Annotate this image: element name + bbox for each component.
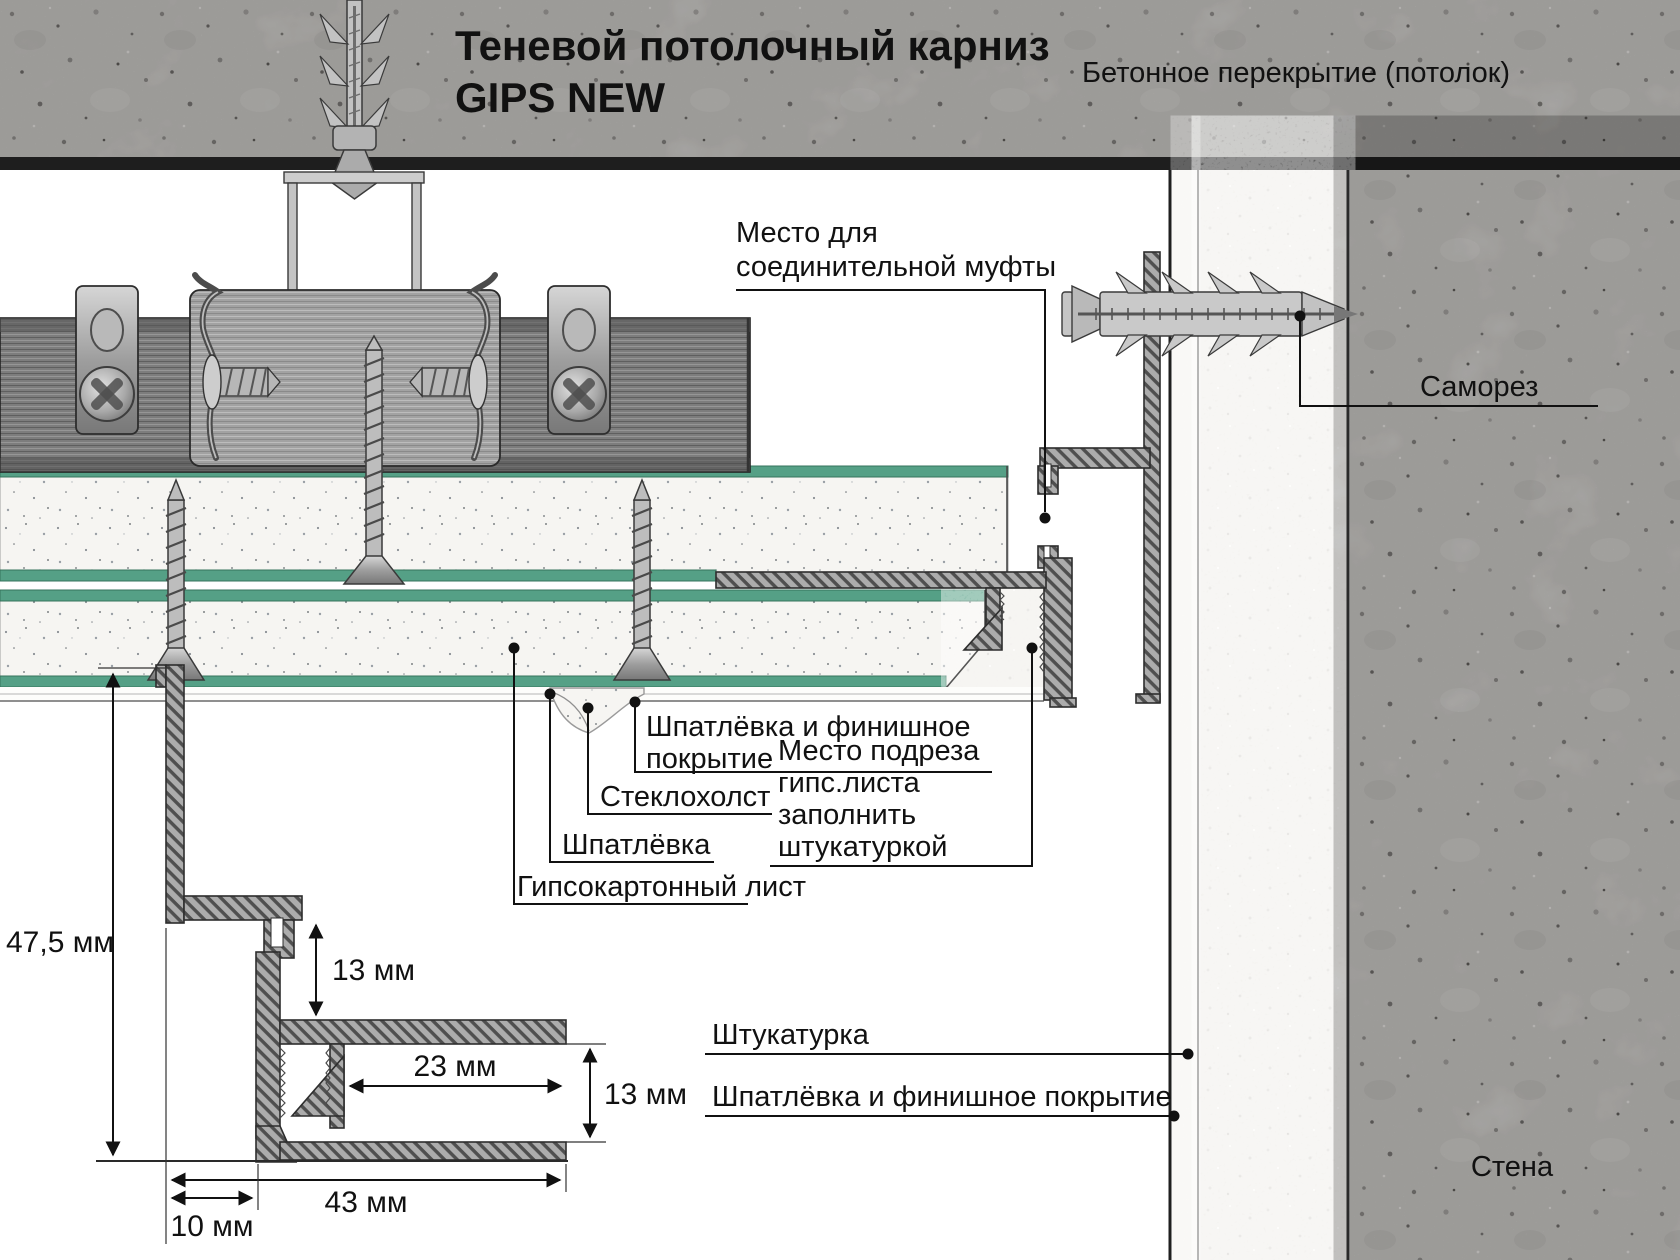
mufta-label-line1: Место для [736,217,878,249]
shadow-cornice-diagram: 47,5 мм 13 мм 23 мм 13 мм 43 мм 10 мм Те… [0,0,1680,1260]
dim-shadow-gap-label: 10 мм [171,1210,254,1243]
dim-total-width-label: 43 мм [325,1186,408,1219]
profile-body [1044,558,1072,700]
phillips-screw-icon [80,367,134,421]
wall-leg [166,665,184,923]
podrez-label-line4: штукатуркой [778,831,947,863]
skim-coat-layer [0,687,1044,702]
plate-hole [563,309,595,351]
mounting-bracket [190,275,500,466]
green-face-bottom [0,676,946,687]
dim-bottom-channel-label: 13 мм [604,1078,687,1111]
drywall-sheet-1 [0,466,1008,581]
gkl-label: Гипсокартонный лист [517,871,806,903]
top-flange [184,896,302,920]
long-flange [716,572,1046,588]
bracket-plate-left [76,286,138,434]
hanger-crossbar [284,172,424,183]
mid-flange [280,1020,566,1044]
page-title-line2: GIPS NEW [455,74,665,121]
mufta-label-line2: соединительной муфты [736,251,1056,283]
drywall-sheet-2 [0,590,985,687]
shtukaturka-label: Штукатурка [712,1019,870,1051]
dim-total-height-label: 47,5 мм [6,926,114,959]
plate-hole [91,309,123,351]
steklokholst-label: Стеклохолст [600,781,770,813]
wall-label: Стена [1471,1151,1554,1183]
samorez-label: Саморез [1420,371,1538,403]
ceiling-label: Бетонное перекрытие (потолок) [1082,57,1510,89]
inner-web [256,952,280,1138]
podrez-label-line1: Место подреза [778,735,980,767]
finish-bottom-label: Шпатлёвка и финишное покрытие [712,1081,1172,1113]
phillips-screw-icon [552,367,606,421]
podrez-label-line3: заполнить [778,799,916,831]
green-face-top [0,590,985,601]
finish-top-label-line2: покрытие [646,743,773,775]
dim-top-channel-label: 13 мм [332,954,415,987]
top-flange [1040,448,1150,468]
bottom-flange [280,1142,566,1160]
ceiling-bottom-line [0,157,1680,170]
bracket-plate-right [548,286,610,434]
shpatlevka-label: Шпатлёвка [562,829,711,861]
page-title-line1: Теневой потолочный карниз [455,22,1050,69]
callout-finish-bottom: Шпатлёвка и финишное покрытие [705,1081,1180,1122]
dim-flange-overhang-label: 23 мм [414,1050,497,1083]
podrez-label-line2: гипс.листа [778,767,921,799]
technical-diagram-page: 47,5 мм 13 мм 23 мм 13 мм 43 мм 10 мм Те… [0,0,1680,1260]
